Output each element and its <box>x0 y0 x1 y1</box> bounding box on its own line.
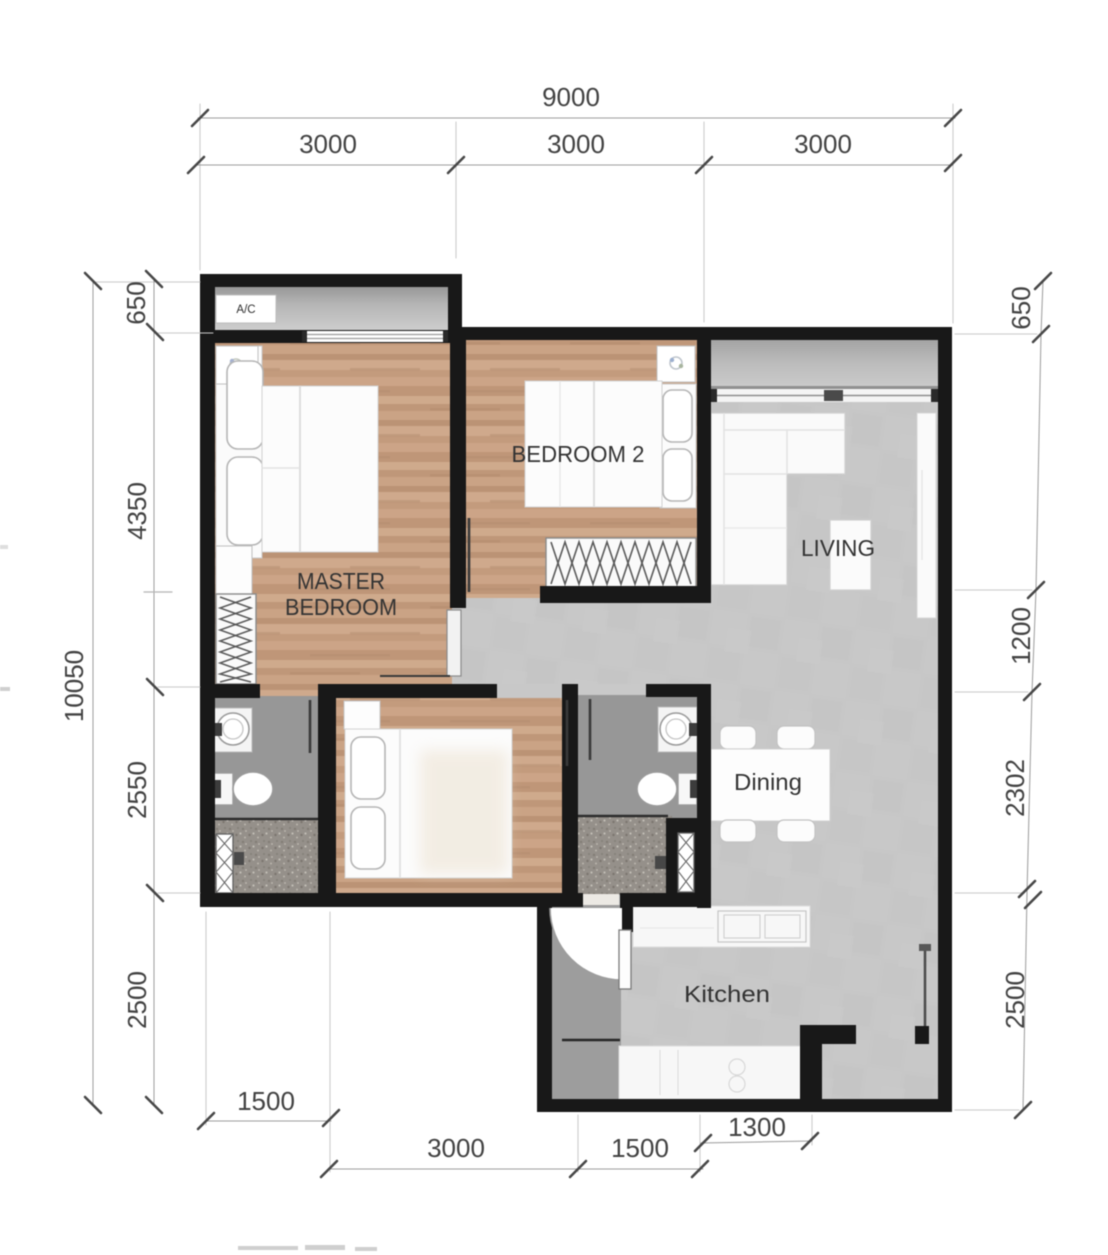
svg-text:LIVING: LIVING <box>801 535 875 561</box>
svg-text:3000: 3000 <box>794 129 852 159</box>
svg-text:2550: 2550 <box>122 761 152 819</box>
svg-text:BEDROOM 2: BEDROOM 2 <box>512 441 645 467</box>
svg-text:10050: 10050 <box>59 650 89 722</box>
svg-text:Dining: Dining <box>734 769 802 795</box>
svg-text:3000: 3000 <box>547 129 605 159</box>
svg-text:BEDROOM: BEDROOM <box>285 594 397 620</box>
svg-text:Kitchen: Kitchen <box>684 981 770 1007</box>
svg-text:2500: 2500 <box>1000 971 1030 1029</box>
svg-text:650: 650 <box>1006 286 1036 329</box>
svg-text:MASTER: MASTER <box>297 568 385 594</box>
svg-text:3000: 3000 <box>299 129 357 159</box>
svg-text:A/C: A/C <box>236 304 255 316</box>
svg-text:9000: 9000 <box>542 82 600 112</box>
svg-text:1500: 1500 <box>237 1086 295 1116</box>
svg-text:1500: 1500 <box>611 1133 669 1163</box>
svg-text:4350: 4350 <box>122 482 152 540</box>
svg-text:2302: 2302 <box>1000 759 1030 817</box>
svg-text:650: 650 <box>121 281 151 324</box>
svg-text:3000: 3000 <box>427 1133 485 1163</box>
svg-text:1200: 1200 <box>1006 607 1036 665</box>
svg-text:2500: 2500 <box>122 971 152 1029</box>
svg-text:1300: 1300 <box>728 1112 786 1142</box>
